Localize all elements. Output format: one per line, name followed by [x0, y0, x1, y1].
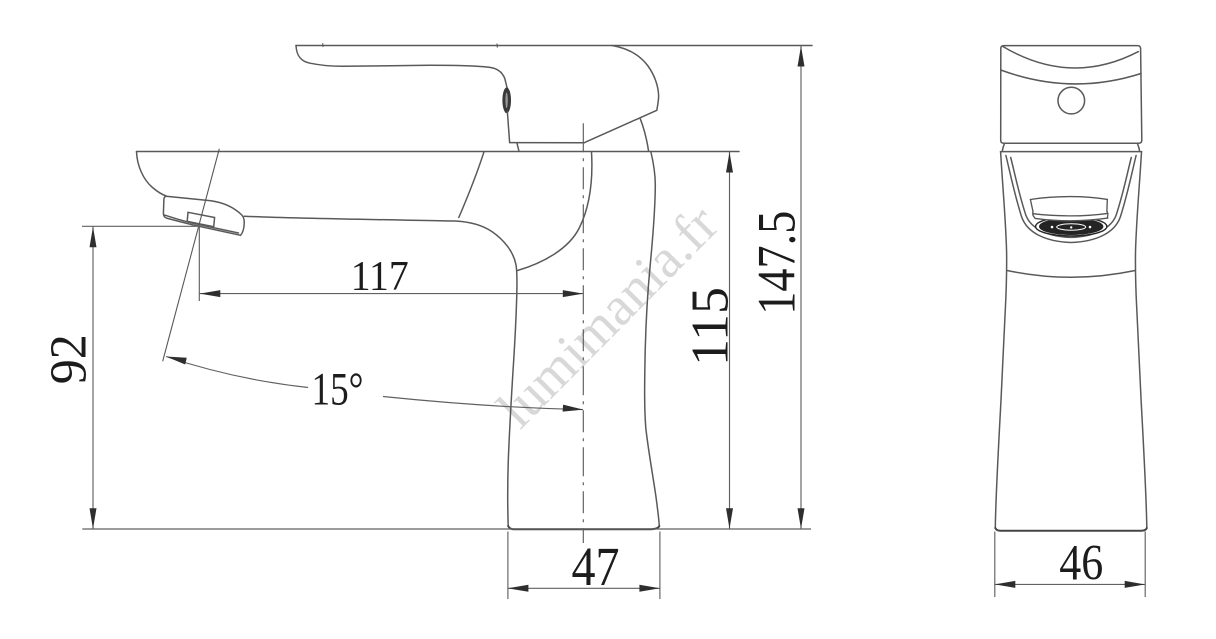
svg-text:147.5: 147.5: [747, 211, 807, 315]
svg-text:115: 115: [682, 287, 740, 366]
svg-text:46: 46: [1059, 536, 1103, 592]
svg-text:47: 47: [572, 536, 620, 597]
svg-text:117: 117: [351, 254, 409, 300]
svg-text:92: 92: [41, 334, 98, 384]
svg-text:15°: 15°: [312, 364, 364, 416]
